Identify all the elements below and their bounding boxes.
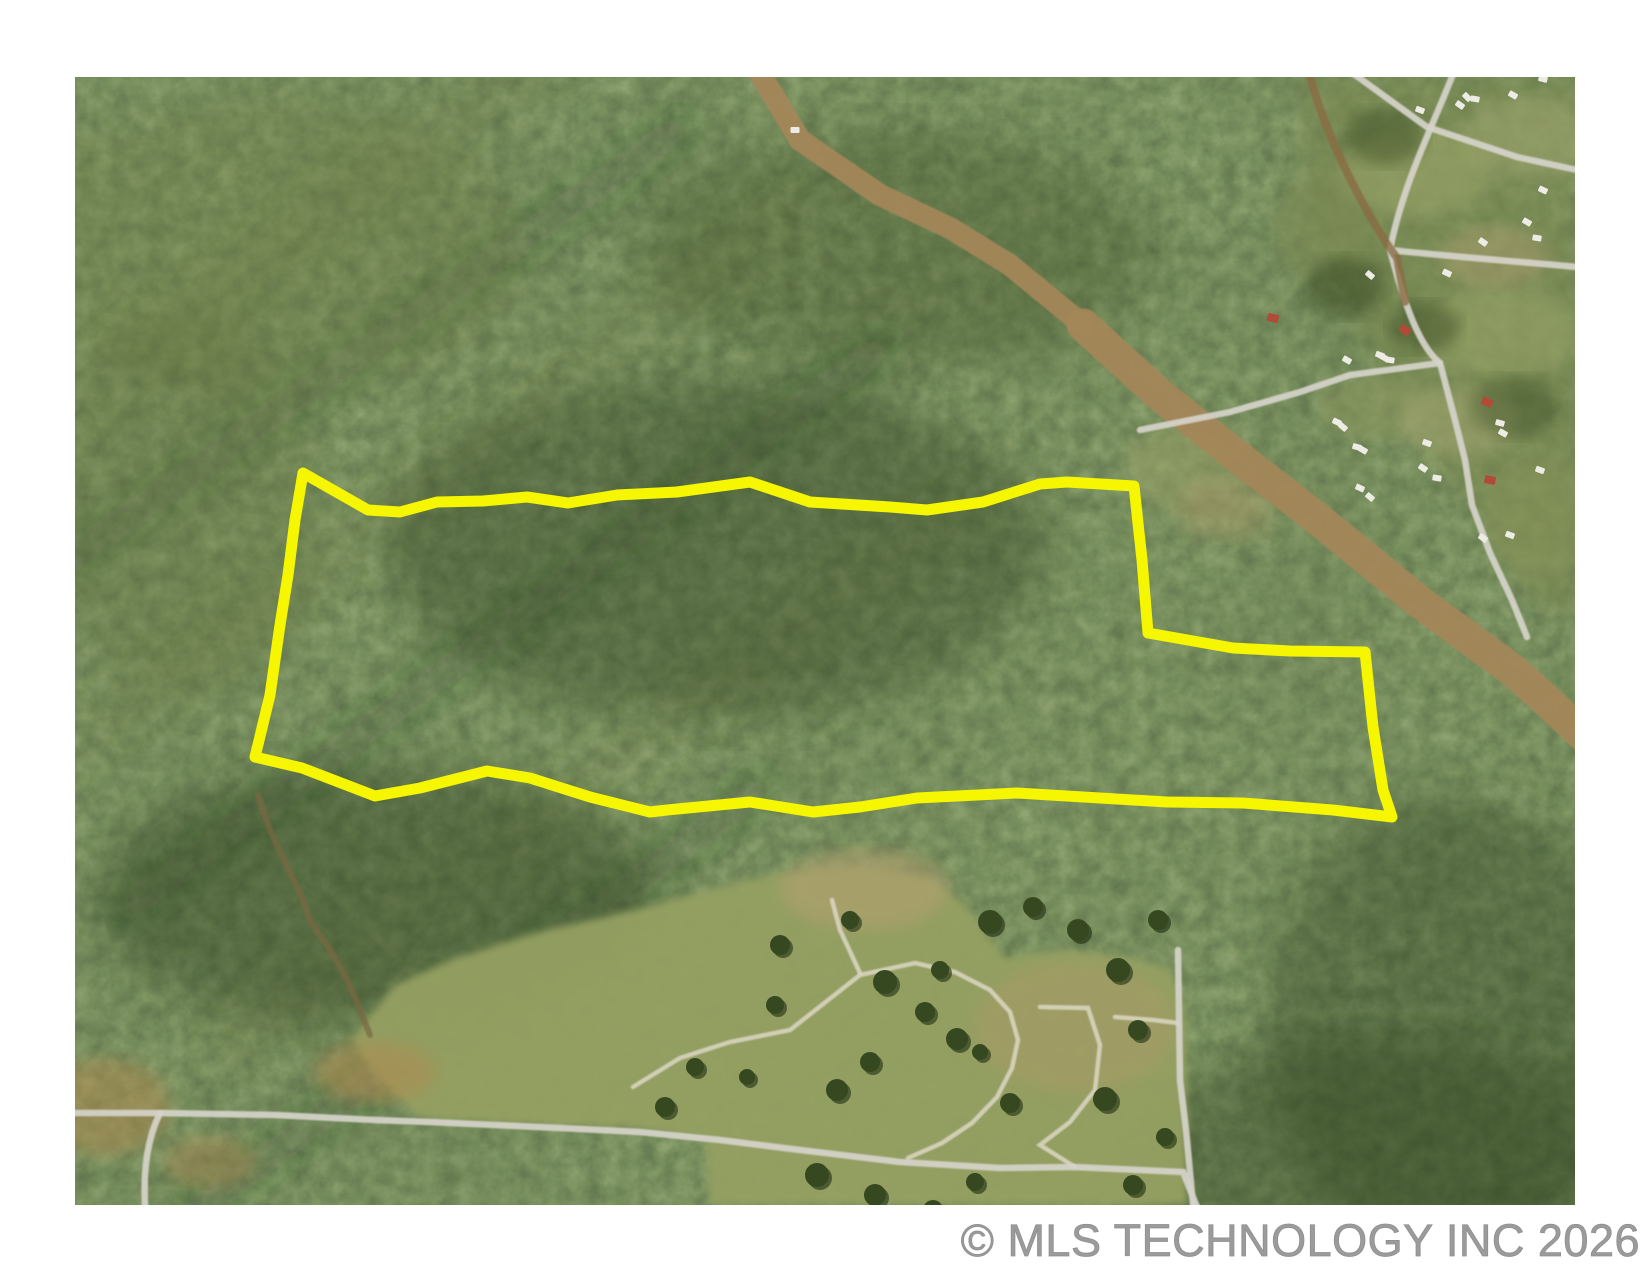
tree xyxy=(805,1163,829,1187)
tree xyxy=(946,1028,968,1050)
tree xyxy=(686,1058,704,1076)
tree xyxy=(860,1052,880,1072)
tree xyxy=(978,910,1002,934)
tree xyxy=(915,1002,935,1022)
tree xyxy=(1156,1128,1174,1146)
tree xyxy=(655,1097,675,1117)
tree xyxy=(966,1173,984,1191)
tree xyxy=(1106,958,1130,982)
house xyxy=(791,127,800,133)
copyright-watermark: © MLS TECHNOLOGY INC 2026 xyxy=(961,1218,1640,1263)
tree xyxy=(864,1184,886,1205)
aerial-photo xyxy=(75,77,1575,1205)
tree xyxy=(841,911,859,929)
tree xyxy=(826,1079,848,1101)
mls-aerial-listing-image: © MLS TECHNOLOGY INC 2026 xyxy=(0,0,1650,1275)
tree xyxy=(1148,910,1168,930)
tree xyxy=(1093,1087,1117,1111)
tree xyxy=(770,935,790,955)
tree xyxy=(873,970,897,994)
tree xyxy=(1128,1020,1148,1040)
tree xyxy=(739,1069,755,1085)
tree xyxy=(972,1044,988,1060)
tree xyxy=(1000,1093,1020,1113)
tree xyxy=(1067,919,1089,941)
tree xyxy=(931,961,949,979)
tree xyxy=(1023,897,1043,917)
tree xyxy=(766,996,784,1014)
tree xyxy=(1123,1175,1143,1195)
